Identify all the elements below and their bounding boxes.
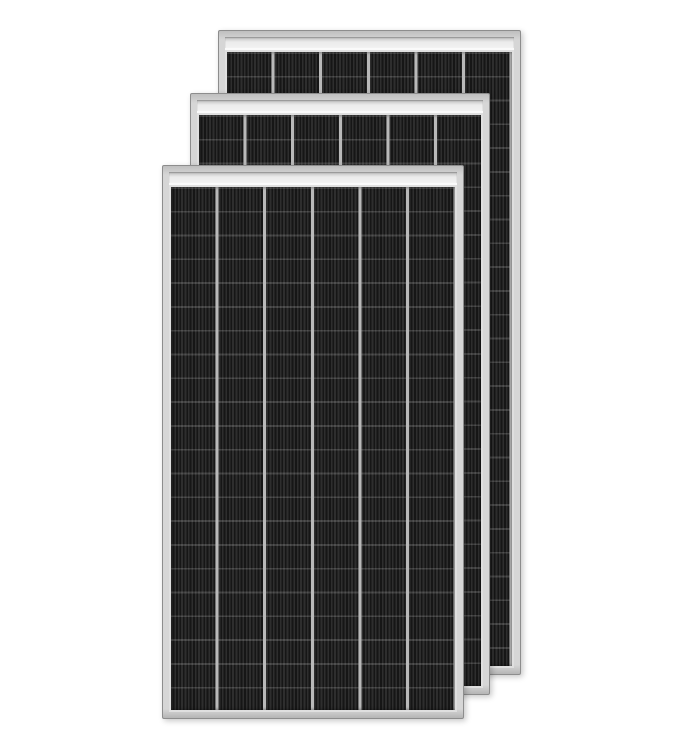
panel-center-divider [169,446,457,451]
panel-inner [169,172,457,712]
product-photo-stage [0,0,684,748]
panel-cell-grid [171,187,455,710]
panel-top-rail [169,172,457,185]
panel-top-rail [197,100,483,113]
panel-top-rail [225,37,514,50]
solar-panel-front [162,165,464,719]
